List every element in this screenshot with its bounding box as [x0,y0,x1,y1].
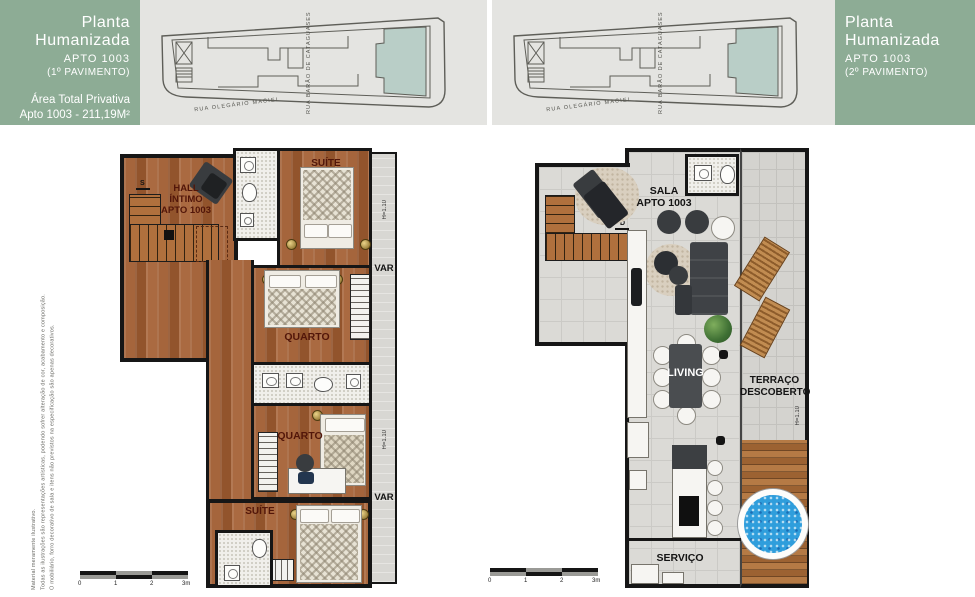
disclaimer-line: Material meramente ilustrativo. [30,278,39,590]
wall-servico [625,538,741,541]
room-bath-middle [251,362,372,407]
bed-duvet [303,170,351,220]
sink-icon [262,373,279,388]
scale-tick: 3m [182,581,190,587]
site-map-panel-1: RUA OLEGÁRIO MACIEL RUA BARÃO DE CATAGUA… [140,0,487,125]
scale-seg [152,575,188,579]
dining-chair [677,406,696,425]
bed-pillow [304,224,328,238]
side-table [711,216,735,240]
stairs-dashed-projection [196,226,228,262]
room-label-quarto-top: QUARTO [272,331,342,343]
pouf [669,266,688,285]
scale-bar-1: 0 1 2 3m [80,571,188,591]
scale-tick: 0 [488,578,491,584]
room-label-suite-bottom: SUÍTE [232,506,288,518]
scale-bar-2: 0 1 2 3m [490,568,598,588]
room-label-var-top: VAR [368,264,400,275]
scale-seg [116,575,152,579]
disclaimer-line: Todas as ilustrações são representações … [39,278,48,590]
room-bath-suite-bottom [215,530,273,588]
site-map-drawing-2: RUA OLEGÁRIO MACIEL RUA BARÃO DE CATAGUA… [500,4,830,122]
scale-tick: 1 [524,578,527,584]
street-label-barao: RUA BARÃO DE CATAGUASES [306,22,312,114]
scale-tick: 1 [114,581,117,587]
room-label-living: LIVING [653,367,718,380]
floorplan-2nd-floor: TERRAÇO DESCOBERTO H=1.10 D SALA APTO 10… [535,148,813,588]
apto-label: APTO 1003 [6,53,130,65]
stairs-up-marker: S [140,180,145,187]
site-map-drawing: RUA OLEGÁRIO MACIEL RUA BARÃO DE CATAGUA… [148,4,478,122]
cooktop-icon [679,496,699,526]
desk [288,468,346,494]
building-footprint-sketch-2 [500,4,830,122]
stairs-turn [545,233,629,261]
floor-label: (1º PAVIMENTO) [6,67,130,78]
sink-icon [224,565,240,581]
pool-spa [738,489,808,559]
stairs-node [164,230,174,240]
washer-icon [631,564,659,584]
room-label-hall: HALL ÍNTIMO APTO 1003 [148,184,224,217]
wardrobe [350,274,370,340]
bed-pillow [305,275,337,288]
scale-seg [526,572,562,576]
sink-icon [240,157,256,173]
area-title: Área Total Privativa [6,94,130,106]
toilet-icon [242,183,257,202]
plant-icon [704,315,732,343]
scale-tick: 2 [150,581,153,587]
bed-duvet [300,524,358,580]
area-value: Apto 1003 - 211,19M² [6,109,130,121]
scale-seg [562,572,598,576]
scale-seg [80,575,116,579]
pool-water [744,495,802,553]
ceiling-height-label: H=1.10 [382,200,388,220]
room-bath-floor2 [685,154,739,196]
fireplace-tv [631,268,642,306]
room-label-suite-top: SUÍTE [298,158,354,170]
bed-pillow [269,275,301,288]
speaker-icon [719,350,728,359]
apto-label-2: APTO 1003 [845,53,971,65]
room-quarto-bottom [251,403,372,500]
nightstand-lamp [286,239,297,250]
bar-stool [707,520,723,536]
scale-tick: 3m [592,578,600,584]
scale-seg [490,572,526,576]
bed-double [296,505,362,583]
page-title-2: Planta Humanizada [845,14,971,50]
dining-chair [702,390,721,409]
bed-pillow [328,224,352,238]
nightstand-lamp [360,239,371,250]
room-bath-suite-top [233,148,280,241]
ceiling-height-label: H=1.10 [382,430,388,450]
bed-pillow [300,509,329,523]
floor-label-2: (2º PAVIMENTO) [845,67,971,78]
site-map-panel-2: RUA OLEGÁRIO MACIEL RUA BARÃO DE CATAGUA… [492,0,835,125]
page-title: Planta Humanizada [6,14,130,50]
desk-chair [296,454,314,472]
ceiling-height-label-2: H=1.10 [795,406,801,426]
scale-tick: 0 [78,581,81,587]
toilet-icon [720,165,735,184]
bar-stool [707,460,723,476]
bed-double [264,270,340,328]
room-quarto-top [251,265,372,365]
kitchen-sink [629,470,647,490]
header-left-floor1: Planta Humanizada APTO 1003 (1º PAVIMENT… [0,0,140,125]
sink-icon [286,373,303,388]
sink-icon [694,165,712,181]
legal-disclaimer: Material meramente ilustrativo. Todas as… [30,278,56,590]
header-right-floor2: Planta Humanizada APTO 1003 (2º PAVIMENT… [835,0,975,125]
bed-duvet [268,289,336,325]
armchair [657,210,681,234]
street-label-barao-2: RUA BARÃO DE CATAGUASES [658,22,664,114]
room-label-quarto-bottom: QUARTO [268,430,332,442]
bed-pillow [331,509,360,523]
bathtub-icon [252,539,267,558]
laptop-icon [298,472,314,484]
bed-double [300,167,354,249]
island-dark-top [672,445,707,469]
floorplan-1st-floor: H=1.10 H=1.10 S HALL ÍNTIMO APTO 1003 SU… [120,148,398,588]
armchair [685,210,709,234]
scale-tick: 2 [560,578,563,584]
room-label-terraco: TERRAÇO DESCOBERTO [740,375,809,398]
toilet-icon [314,377,333,392]
room-label-var-bottom: VAR [368,493,400,504]
sideboard [627,230,647,418]
laundry-sink [662,572,684,584]
sofa-chaise [675,285,692,315]
speaker-icon [716,436,725,445]
building-footprint-sketch [148,4,478,122]
corridor [206,260,254,502]
room-label-servico: SERVIÇO [635,552,725,564]
disclaimer-line: O mobiliário, forro decorativo de sala e… [49,278,58,590]
shower-icon [346,374,361,389]
bar-stool [707,480,723,496]
kitchen-counter [627,422,649,458]
sofa [690,242,728,315]
shower-valve-icon [240,213,254,227]
bar-stool [707,500,723,516]
